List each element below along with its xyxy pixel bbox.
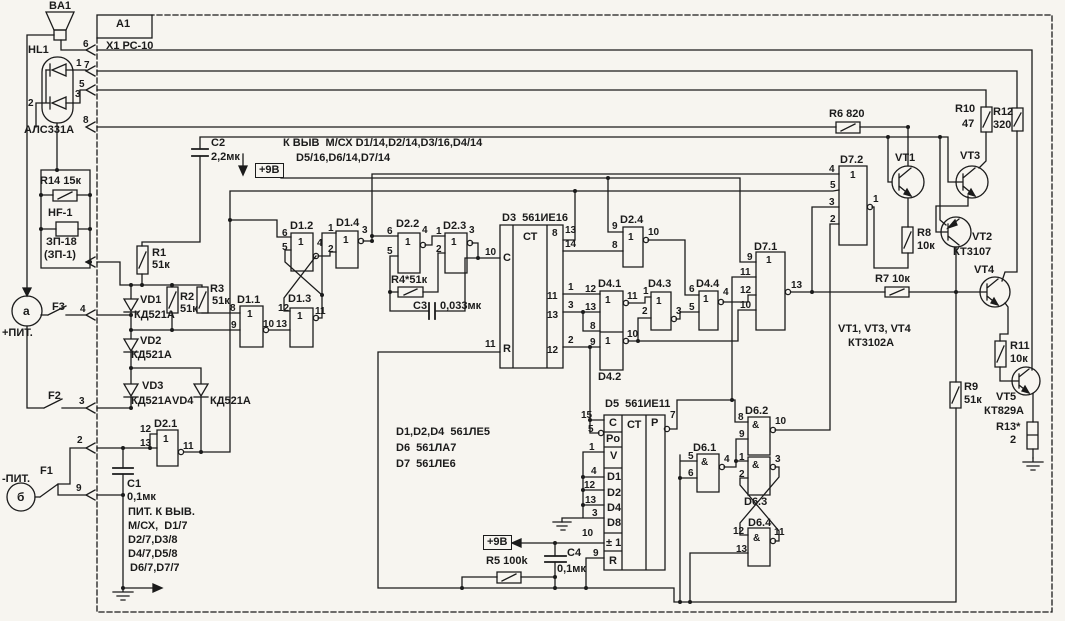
junction-dots xyxy=(39,125,958,604)
arrow-into-terminal-a xyxy=(23,288,31,296)
led-hl1-icon xyxy=(36,57,73,127)
capacitors xyxy=(113,149,566,562)
terminal-b[interactable] xyxy=(7,483,35,511)
plus9v-top-arrow xyxy=(239,166,247,175)
transistors xyxy=(892,166,1040,395)
diodes xyxy=(124,299,208,397)
offpage-arrow xyxy=(153,584,162,592)
wires xyxy=(27,35,1033,602)
speaker-icon xyxy=(46,12,74,40)
module-a1-box xyxy=(97,15,152,38)
ground-icon xyxy=(113,458,1043,600)
inverter-output-circles xyxy=(178,204,872,543)
plus9v-bottom-arrow xyxy=(512,539,521,547)
arrows xyxy=(153,166,521,592)
schematic-page: BA1A1X1 РС-10HL1132АЛС331АR14 15кHF-1ЗП-… xyxy=(0,0,1065,621)
connector-pin-icon xyxy=(86,45,95,500)
terminal-a[interactable] xyxy=(12,296,42,326)
buzzer-icon xyxy=(56,222,78,236)
schematic-drawing xyxy=(0,0,1065,621)
